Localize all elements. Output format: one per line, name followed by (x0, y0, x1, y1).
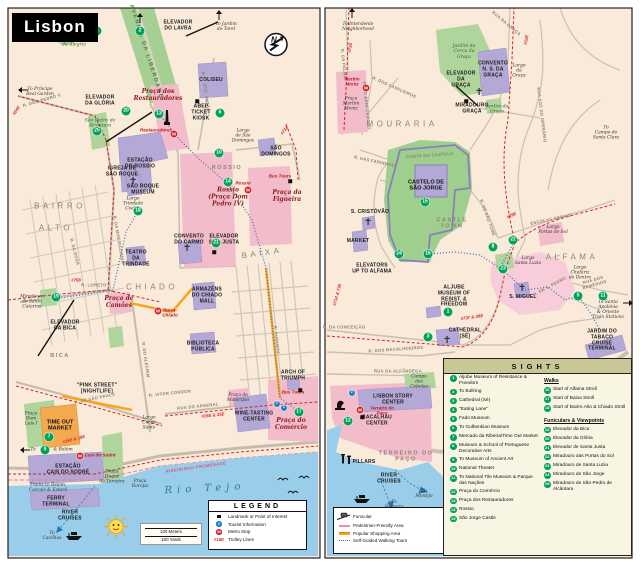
pillars-icon (340, 452, 352, 470)
sight-label: Museum & School of Portuguese Decorative… (459, 443, 538, 454)
map-label: Praça do Comércio (275, 418, 307, 432)
map-symbols-legend-item: Self-Guided Walking Tours (338, 538, 442, 543)
map-label: ELEVATORS UP TO ALFAMA (352, 263, 392, 275)
sight-list-item-19[interactable]: 19Elevador da Bica (544, 427, 628, 434)
shopping-symbol-icon (339, 532, 350, 535)
map-label: R. DOS BACALHOEIROS (368, 346, 423, 355)
sight-list-item-12[interactable]: 12Praça do Comércio (450, 489, 538, 496)
metro-stop-icon: M (77, 453, 84, 460)
map-label: R. LORETO (81, 284, 106, 289)
sights-column-1: 1Aljube Museum of Resistance & Freedom2T… (450, 375, 538, 525)
sight-number-badge: 25 (544, 481, 551, 488)
sight-marker-10[interactable]: 10 (215, 149, 224, 158)
sight-list-item-3[interactable]: 3Cathedral (Sé) (450, 398, 538, 405)
sight-list-item-18[interactable]: 18Start of Bairro Alto & Chiado Stroll (544, 405, 628, 412)
sight-label: To Museum of Ancient Art (459, 457, 513, 464)
map-label: RUA VOZ DO OPERÁRIO (535, 87, 547, 143)
sight-label: Rossio (459, 507, 474, 514)
map-label: ALTO (39, 223, 73, 232)
sight-marker-5[interactable]: 5 (574, 292, 583, 301)
map-label: CHIADO (126, 282, 178, 291)
metro-stop-icon: M (245, 187, 252, 194)
map-label: R. DA CONCEIÇÃO (323, 326, 366, 331)
landmark-icon (298, 388, 302, 392)
map-label: R. DOS CAVALEIROS (371, 76, 416, 100)
map-symbols-legend-item: Funicular (338, 512, 442, 521)
map-label: R. DE S. PEDRO (533, 276, 568, 297)
sight-label: Cathedral (Sé) (459, 398, 490, 405)
metro-stop-icon: M (363, 85, 370, 92)
map-label: #714 (280, 126, 290, 137)
map-label: Baixa- Chiado (162, 308, 178, 319)
map-label: RIBEIRINHO PROMENADE (165, 461, 226, 474)
sight-label: Mercado da Ribeira/Time Out Market (459, 434, 538, 441)
map-label: #15E & 18E (62, 435, 86, 445)
sight-list-item-24[interactable]: 24Miradouro de São Jorge (544, 472, 628, 479)
map-label: R. DAS FARINHAS (353, 155, 394, 168)
map-label: PILLARS (353, 460, 376, 466)
map-label: LISBON STORY CENTER (373, 394, 413, 406)
map-symbols-legend-label: Funicular (353, 514, 372, 519)
sight-number-badge: 17 (544, 396, 551, 403)
sight-marker-20[interactable]: 20 (122, 107, 131, 116)
sight-number-badge: 13 (450, 498, 457, 505)
sight-label: Miradouro de Santa Luzia (553, 463, 608, 470)
map-symbols-legend-item: Popular Shopping Area (338, 531, 442, 536)
map-symbols-legend-label: Pedestrian-Friendly Area (353, 523, 404, 528)
map-label: R. AUGUSTA (272, 326, 280, 355)
church-icon (130, 171, 137, 189)
map-label: COSTA DO CASTELO (406, 152, 454, 160)
map-label: ESTAÇÃO CAIS DO SODRÉ (47, 464, 90, 476)
sight-number-badge: 5 (450, 416, 457, 423)
map-label: ALJUBE MUSEUM OF RESIST. & FREEDOM (438, 286, 470, 309)
sight-marker-25[interactable]: 25 (93, 127, 102, 136)
sight-number-badge: 11 (450, 475, 457, 482)
pedestrian-symbol-icon (339, 525, 350, 527)
sights-panel: SIGHTS 1Aljube Museum of Resistance & Fr… (443, 358, 632, 556)
metro-symbol-icon: M (216, 529, 222, 535)
sight-list-item-2[interactable]: 2To Bullring (450, 389, 538, 396)
map-label: RUA DO ARSENAL (177, 402, 219, 411)
map-label: R. VITOR CORDON (149, 389, 192, 398)
map-label: Cais do Sodré (85, 452, 116, 457)
map-label: #734 (348, 43, 355, 53)
map-label: R. DA MISERICÓRDIA (111, 216, 124, 265)
sight-marker-19[interactable]: 19 (52, 293, 61, 302)
sight-marker-17[interactable]: 17 (295, 408, 304, 417)
sight-number-badge: 18 (544, 405, 551, 412)
sight-label: Elevador de Santa Justa (553, 445, 605, 452)
tourist-info-icon: i (281, 405, 287, 411)
sight-marker-9[interactable]: 9 (41, 446, 50, 455)
map-label: R. DE SÃO TOMÉ (478, 199, 496, 237)
metro-stop-icon: M (171, 131, 178, 138)
map-label: ELEVADOR DO LAVRA (163, 20, 192, 32)
sight-marker-14[interactable]: 14 (224, 178, 233, 187)
map-label: Rio Tejo (164, 481, 245, 497)
map-label: MARKET (347, 239, 370, 245)
walks-header: Walks (544, 378, 628, 384)
arrow-icon (136, 11, 144, 29)
map-label: To Montijo (415, 489, 432, 499)
map-label: Praça Duque da Terceira (99, 469, 124, 484)
obelisk-icon (163, 110, 171, 132)
map-label: MOURARIA (366, 119, 437, 128)
map-label: #737 & 28E (460, 314, 483, 322)
sight-number-badge: 6 (450, 425, 457, 432)
metro-stop-icon: M (155, 308, 162, 315)
sight-label: Miradouro das Portas do Sol (553, 454, 614, 461)
map-label: ELEVADOR DA GLÓRIA (85, 95, 115, 107)
sight-label: To National Tile Museum & Parque das Naç… (459, 475, 538, 486)
sight-list-item-9[interactable]: 9To Museum of Ancient Art (450, 457, 538, 464)
map-label: MIRADOURO GRAÇA (455, 103, 488, 115)
map-label: BAIXA (241, 246, 283, 261)
sight-label: Start of Alfama Stroll (553, 387, 597, 394)
map-label: TIME OUT MARKET (47, 420, 74, 433)
landmark-icon (195, 99, 199, 103)
sight-list-item-21[interactable]: 21Elevador de Santa Justa (544, 445, 628, 452)
legend-item-label: Metro Stop (228, 529, 250, 534)
sight-number-badge: 15 (450, 516, 457, 523)
sight-label: National Theater (459, 466, 494, 473)
sight-list-item-20[interactable]: 20Elevador da Glória (544, 436, 628, 443)
sight-list-item-4[interactable]: 4"Eating Lane" (450, 407, 538, 414)
sight-marker-11[interactable]: 11 (599, 292, 608, 301)
map-label: BICA (50, 353, 69, 359)
sight-number-badge: 22 (544, 454, 551, 461)
map-label: Largo da Graça (512, 63, 525, 78)
compass-icon: N (262, 31, 290, 64)
bird-icon (298, 467, 310, 485)
legend-item-label: Trolley Lines (228, 537, 254, 542)
sight-list-item-10[interactable]: 10National Theater (450, 466, 538, 473)
map-label: & Belém (53, 447, 72, 452)
sight-list-item-14[interactable]: 14Rossio (450, 507, 538, 514)
sight-marker-15[interactable]: 15 (421, 198, 430, 207)
church-icon (444, 330, 451, 348)
landmark-icon (288, 179, 292, 183)
map-label: #15E & 25E (201, 412, 225, 419)
map-label: #24E (12, 105, 22, 116)
sights-header: SIGHTS (444, 359, 631, 374)
map-label: Miradouro de Santa Catarina (20, 294, 44, 309)
sight-label: Start of Baixa Stroll (553, 396, 594, 403)
map-label: To Cacilhas (43, 531, 62, 541)
map-label: TERREIRO DO PAÇO (379, 451, 434, 464)
map-label: RIVER CRUISES (377, 473, 401, 485)
map-label: Trains to Belém, Cascais & Estoril (29, 483, 67, 493)
sun-icon (104, 515, 128, 544)
map-label: FERRY TERMINAL (42, 496, 69, 508)
sight-label: Miradouro de São Pedro de Alcântara (553, 481, 628, 492)
sight-marker-12[interactable]: 12 (344, 417, 353, 426)
sight-list-item-16[interactable]: 16Start of Alfama Stroll (544, 387, 628, 394)
arrow-icon (348, 6, 356, 24)
map-label: R. DO ALECRIM (140, 342, 150, 378)
map-label: Praça Europa (132, 479, 148, 489)
trolley-symbol-icon: #15E (214, 537, 224, 542)
map-label: CASTLE TOWN (437, 218, 468, 231)
sight-marker-1[interactable]: 1 (444, 308, 453, 317)
map-label: CASTELO DE SÃO JORGE (408, 180, 444, 193)
map-symbols-legend-label: Popular Shopping Area (353, 531, 400, 536)
legend-box: LEGEND Landmark or Point of InterestiTou… (208, 500, 307, 550)
map-label: ELEVADOR DA BICA (50, 320, 79, 332)
map-label: CATHEDRAL [SÉ] (449, 328, 482, 340)
sight-marker-16[interactable]: 16 (424, 250, 433, 259)
sight-number-badge: 8 (450, 443, 457, 450)
sight-list-item-1[interactable]: 1Aljube Museum of Resistance & Freedom (450, 375, 538, 386)
map-label: #28E (506, 212, 517, 221)
map-label: AVENIDA DA LIBERDADE (128, 4, 165, 100)
lisbon-map-page: Lisbon Praça da AlegriaAVENIDA DA LIBERD… (0, 0, 640, 568)
map-label: Praça do Município (227, 393, 249, 403)
sight-marker-22[interactable]: 22 (509, 236, 518, 245)
sight-label: Elevador da Bica (553, 427, 589, 434)
scale-indicator: 100 Meters 100 Yards (140, 523, 202, 545)
sight-marker-7[interactable]: 7 (45, 433, 54, 442)
map-label: ARCH OF TRIUMPH (281, 370, 305, 382)
info-symbol-icon: i (216, 521, 222, 527)
map-label: R. DA PALMA (339, 49, 347, 80)
bird-icon (287, 482, 299, 500)
map-label: Jardim da Graça (486, 105, 509, 116)
sight-list-item-6[interactable]: 6To Gulbenkian Museum (450, 425, 538, 432)
sight-list-item-7[interactable]: 7Mercado da Ribeira/Time Out Market (450, 434, 538, 441)
sight-label: Praça dos Restauradores (459, 498, 513, 505)
map-label: BACALHAU CENTER (362, 415, 392, 427)
arrow-icon (16, 86, 34, 94)
map-label: #758 (71, 279, 81, 284)
map-symbols-legend-item: Pedestrian-Friendly Area (338, 523, 442, 528)
tourist-info-icon: i (274, 401, 280, 407)
tourist-info-icon: i (349, 390, 355, 396)
sight-label: "Eating Lane" (459, 407, 488, 414)
sight-label: To Bullring (459, 389, 481, 396)
map-label: CONVENTO N. S. DA GRAÇA (478, 61, 508, 78)
church-icon (519, 278, 526, 296)
sight-number-badge: 20 (544, 436, 551, 443)
map-label: Rossio (235, 180, 250, 185)
sight-number-badge: 4 (450, 407, 457, 414)
map-label: Praça de Camões (104, 296, 133, 310)
map-label: Largo Portas do Sol (538, 225, 567, 235)
landmark-icon (360, 415, 364, 419)
sight-marker-21[interactable]: 21 (212, 239, 221, 248)
sight-number-badge: 2 (450, 389, 457, 396)
sight-list-item-22[interactable]: 22Miradouro das Portas do Sol (544, 454, 628, 461)
map-label: To Intendente Neighborhood (342, 22, 374, 32)
map-label: Praça Martim Moniz (343, 96, 360, 111)
legend-item: Landmark or Point of Interest (213, 514, 302, 519)
sight-marker-18[interactable]: 18 (134, 207, 143, 216)
sight-list-item-5[interactable]: 5Fado Museum (450, 416, 538, 423)
arrow-icon (617, 299, 635, 307)
legend-item: MMetro Stop (213, 529, 302, 535)
sight-number-badge: 24 (544, 472, 551, 479)
sight-number-badge: 12 (450, 489, 457, 496)
church-icon (365, 212, 372, 230)
map-label: ARMAZÉNS DO CHIADO MALL (192, 287, 222, 304)
legend-item: iTourist Information (213, 521, 302, 527)
church-icon (184, 238, 191, 256)
map-symbols-legend-label: Self-Guided Walking Tours (353, 538, 407, 543)
funicular-symbol-icon (337, 512, 351, 521)
map-label: Bus Tours (269, 173, 292, 178)
landmark-symbol-icon (217, 515, 221, 519)
arrow-icon (215, 8, 223, 26)
sight-label: Praça do Comércio (459, 489, 500, 496)
sight-number-badge: 23 (544, 463, 551, 470)
sight-number-badge: 19 (544, 427, 551, 434)
map-label: Largo Corpo Santo (142, 415, 156, 430)
sight-list-item-17[interactable]: 17Start of Baixa Stroll (544, 396, 628, 403)
arrow-icon (18, 446, 36, 454)
metro-stop-icon: M (357, 407, 364, 414)
map-label: Praça da Figueira (272, 190, 301, 204)
map-label: TEATRO DA TRINDADE (122, 250, 149, 267)
sight-list-item-23[interactable]: 23Miradouro de Santa Luzia (544, 463, 628, 470)
legend-header: LEGEND (209, 501, 306, 512)
boat-icon (65, 528, 83, 546)
map-title: Lisbon (12, 13, 98, 42)
sight-label: Fado Museum (459, 416, 490, 423)
sight-label: Aljube Museum of Resistance & Freedom (459, 375, 538, 386)
sight-list-item-11[interactable]: 11To National Tile Museum & Parque das N… (450, 475, 538, 486)
sight-label: São Jorge Castle (459, 516, 496, 523)
sight-marker-6[interactable]: 6 (216, 109, 225, 118)
sight-marker-23[interactable]: 23 (499, 265, 508, 274)
sight-number-badge: 1 (450, 375, 457, 382)
sight-number-badge: 10 (450, 466, 457, 473)
map-label: Praça dos Restauradores (134, 89, 183, 103)
legend-item: #15ETrolley Lines (213, 537, 302, 542)
sight-list-item-13[interactable]: 13Praça dos Restauradores (450, 498, 538, 505)
sight-marker-3[interactable]: 3 (424, 333, 433, 342)
sights-column-2: Walks16Start of Alfama Stroll17Start of … (544, 375, 628, 495)
map-label: R. DA ROSA (68, 238, 79, 266)
funiculars-viewpoints-header: Funiculars & Viewpoints (544, 418, 628, 424)
map-label: WINE-TASTING CENTER (235, 411, 274, 423)
map-label: JARDIM DO TABACO CRUISE TERMINAL (583, 330, 621, 353)
sight-list-item-15[interactable]: 15São Jorge Castle (450, 516, 538, 523)
map-symbols-legend-box: FunicularPedestrian-Friendly AreaPopular… (333, 507, 447, 554)
scale-meters: 100 Meters (145, 528, 197, 535)
walking-symbol-icon (339, 540, 350, 541)
sight-label: Miradouro de São Jorge (553, 472, 604, 479)
sight-label: To Gulbenkian Museum (459, 425, 509, 432)
map-label: BIBLIOTECA PÚBLICA (187, 341, 220, 353)
map-label: Rossio (Praça Dom Pedro IV) (208, 188, 248, 209)
map-label: ROSSIO (212, 165, 242, 171)
sight-number-badge: 7 (450, 434, 457, 441)
map-label: Jardim da Cerca da Graça (453, 44, 476, 60)
legend-item-label: Tourist Information (228, 522, 266, 527)
sight-number-badge: 21 (544, 445, 551, 452)
map-label: To Campo de Santa Clara (593, 125, 619, 140)
sight-label: Start of Bairro Alto & Chiado Stroll (553, 405, 625, 412)
landmark-icon (212, 250, 216, 254)
church-icon (476, 82, 483, 100)
sight-marker-24[interactable]: 24 (395, 250, 404, 259)
map-label: BAIRRO (34, 201, 86, 210)
sight-list-item-25[interactable]: 25Miradouro de São Pedro de Alcântara (544, 481, 628, 492)
map-label: Largo de São Domingos (232, 128, 254, 143)
map-label: RIVER CRUISES (58, 510, 82, 522)
map-label: RUA DA GRAÇA (491, 11, 522, 38)
sight-label: Elevador da Glória (553, 436, 593, 443)
sight-number-badge: 3 (450, 398, 457, 405)
map-label: Largo Santa Luzia (515, 256, 541, 266)
map-label: Martim Moniz (344, 77, 359, 88)
map-label: SÃO DOMINGOS (261, 146, 290, 158)
map-label: ELEVADOR DA GRAÇA (446, 71, 475, 88)
sight-number-badge: 14 (450, 507, 457, 514)
map-label: Praça Dom Luís I (25, 411, 38, 426)
map-label: #714 & 736 (333, 284, 344, 307)
sight-marker-8[interactable]: 8 (489, 243, 498, 252)
landmark-icon (464, 99, 468, 103)
legend-item-label: Landmark or Point of Interest (228, 514, 287, 519)
map-label: #12E (524, 35, 531, 46)
statue-icon (334, 398, 346, 416)
sight-number-badge: 16 (544, 387, 551, 394)
map-label: ALFAMA (546, 252, 599, 261)
map-label: Campo das Cebolas (410, 374, 428, 389)
sight-number-badge: 9 (450, 457, 457, 464)
scale-yards: 100 Yards (145, 536, 197, 543)
sight-list-item-8[interactable]: 8Museum & School of Portuguese Decorativ… (450, 443, 538, 454)
svg-text:N: N (271, 36, 277, 45)
